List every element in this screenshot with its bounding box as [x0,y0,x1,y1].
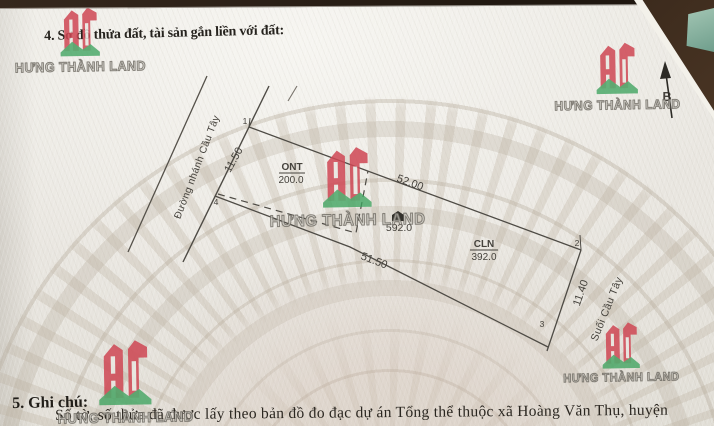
plot-diagram: 1 2 3 4 52.00 11.40 51.50 11.50 ONT 200.… [0,0,714,426]
house-icon [392,211,404,221]
total-area-label: 592.0 [386,222,412,234]
dim-left: 11.50 [222,145,245,174]
corner-label-4: 4 [214,197,219,207]
corner-label-1: 1 [243,116,248,126]
dim-right: 11.40 [571,278,591,307]
corner-label-3: 3 [540,319,545,329]
zone-cln-area: 392.0 [471,252,496,263]
corner-tick-2 [580,235,581,250]
zone-cln-code: CLN [474,239,495,250]
stream-label: Suối Cầu Tây [589,275,626,343]
teal-paper-corner [686,8,714,52]
dim-top: 52.00 [395,173,425,194]
zone-ont-area: 200.0 [278,175,303,186]
dim-bottom: 51.50 [359,250,389,271]
north-arrow-head [660,61,671,79]
zone-ont-code: ONT [281,162,302,173]
photo-frame: 1 2 3 4 52.00 11.40 51.50 11.50 ONT 200.… [0,0,714,426]
corner-label-2: 2 [575,238,580,248]
crease-mark [288,86,297,101]
